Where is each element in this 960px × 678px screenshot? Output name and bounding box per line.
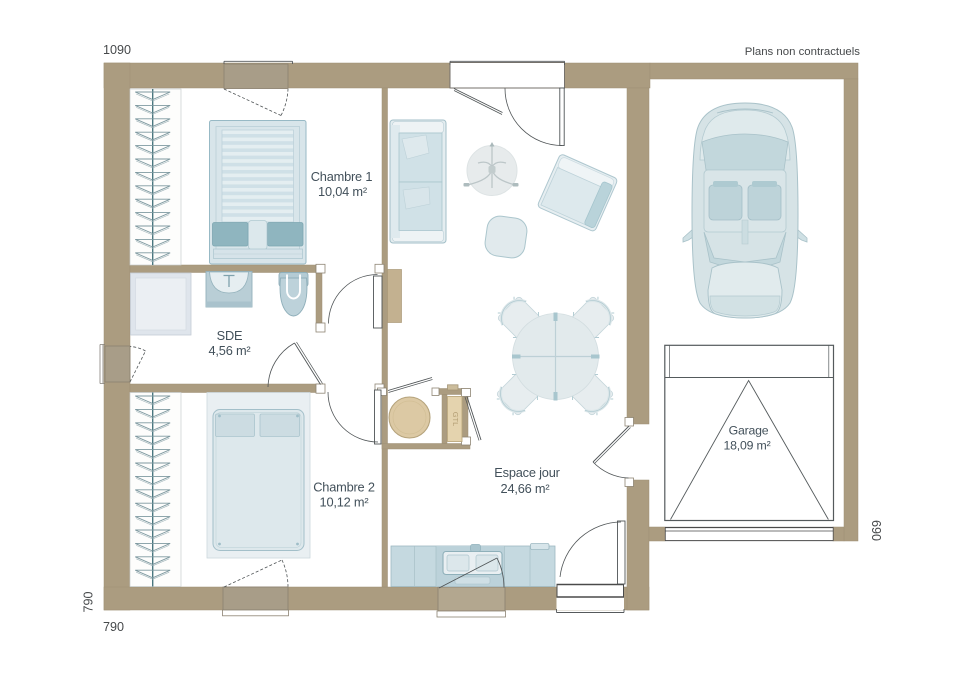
- svg-text:10,04 m²: 10,04 m²: [318, 184, 368, 199]
- svg-text:18,09 m²: 18,09 m²: [724, 439, 771, 453]
- svg-text:Espace jour: Espace jour: [494, 465, 560, 480]
- svg-text:Chambre 1: Chambre 1: [311, 169, 373, 184]
- svg-text:1090: 1090: [103, 43, 131, 57]
- svg-text:SDE: SDE: [217, 328, 243, 343]
- svg-text:Plans non contractuels: Plans non contractuels: [745, 46, 861, 58]
- svg-text:24,66 m²: 24,66 m²: [501, 481, 551, 496]
- svg-text:790: 790: [103, 620, 124, 634]
- svg-text:Chambre 2: Chambre 2: [313, 480, 375, 495]
- svg-text:GTL: GTL: [451, 412, 460, 427]
- svg-text:4,56 m²: 4,56 m²: [209, 343, 252, 358]
- svg-text:790: 790: [82, 591, 96, 612]
- svg-text:690: 690: [869, 520, 883, 541]
- svg-text:10,12 m²: 10,12 m²: [320, 495, 370, 510]
- svg-text:Garage: Garage: [729, 424, 769, 438]
